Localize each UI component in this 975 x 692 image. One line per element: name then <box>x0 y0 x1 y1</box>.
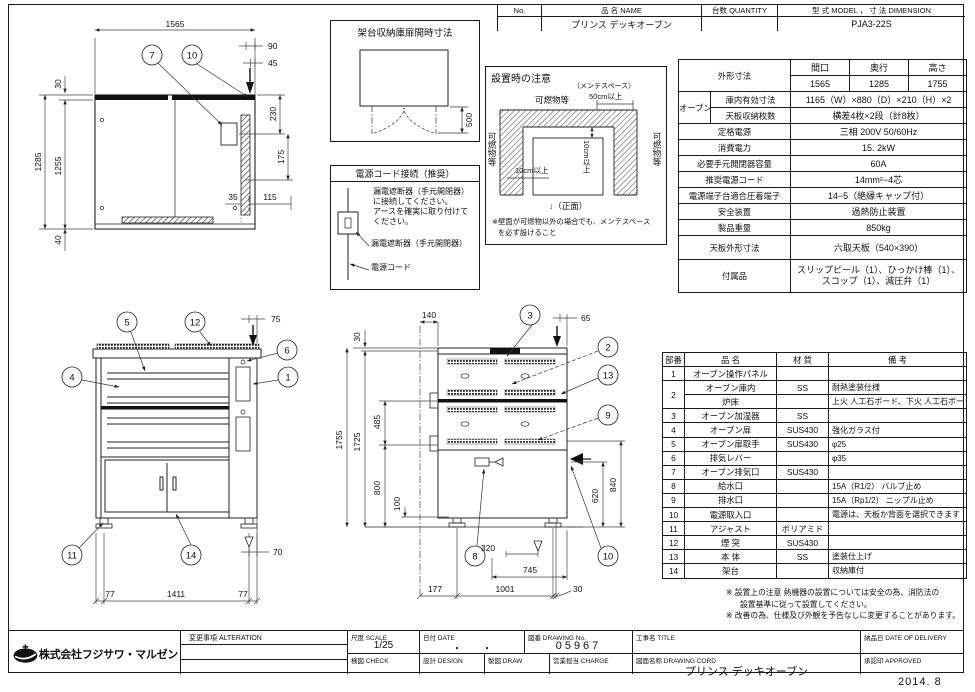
stand-door-open-diagram: 架台収納庫扉開時寸法 500 <box>330 20 480 142</box>
dim-label: 230 <box>268 107 278 121</box>
dim-label: 177 <box>428 584 442 594</box>
wall-note: を必ず設けること <box>498 228 556 238</box>
dim-label: 30 <box>352 332 362 342</box>
dim-label: 30 <box>573 584 583 594</box>
spec-label: 安全装置 <box>679 204 791 220</box>
part-material <box>777 395 829 409</box>
part-material <box>777 508 829 522</box>
dim-label: 1255 <box>53 156 63 175</box>
part-name: オーブン扉 <box>685 423 777 437</box>
part-material <box>777 564 829 578</box>
part-remark <box>829 536 967 550</box>
spec-value: 14mm²−4芯 <box>791 172 967 188</box>
part-remark <box>829 409 967 423</box>
spec-value: 三相 200V 50/60Hz <box>791 124 967 140</box>
spec-value: 850kg <box>791 220 967 236</box>
draw-cell: 製図 DRAW <box>484 653 549 674</box>
dim-label: 320 <box>481 543 495 553</box>
part-material: SUS430 <box>777 536 829 550</box>
part-name: 排気レバー <box>685 451 777 465</box>
dim-label: 70 <box>273 547 283 557</box>
drawing-name-cell: 図面名称 DRAWING CORD プリンス デッキオーブン <box>632 653 860 674</box>
dim-label: 77 <box>105 589 115 599</box>
dim-label: 1285 <box>33 152 43 171</box>
dim-label: 40 <box>53 235 63 245</box>
spec-label: 製品重量 <box>679 220 791 236</box>
dim-label: 800 <box>372 481 382 495</box>
parts-row: 7オーブン排気口SUS430 <box>663 465 967 479</box>
callout-9: 9 <box>605 411 610 422</box>
dim-label: 1411 <box>167 589 186 599</box>
installation-caution-box: 設置時の注意 （メンテスペース） 50cm以上 可燃物等 可燃物等 可燃物等 1… <box>485 66 667 245</box>
installation-notes: ※ 設置上の注意 熱機器の設置については安全の為、消防法の 設置基準に従って設置… <box>726 587 968 622</box>
dim-label: 45 <box>268 58 278 68</box>
drawing-sheet: No. 品 名 NAME 台数 QUANTITY 型 式 MODEL ， 寸 法… <box>0 0 975 692</box>
parts-row: 1オーブン操作パネル <box>663 367 967 381</box>
part-no: 3 <box>663 409 685 423</box>
part-no: 5 <box>663 437 685 451</box>
spec-label: 必要手元開閉器容量 <box>679 156 791 172</box>
spec-value: 1165（W）×880（D）×210（H）×2 <box>791 92 967 108</box>
spec-label: 庫内有効寸法 <box>711 92 791 108</box>
spec-outer-label: 外形寸法 <box>679 60 791 92</box>
maintenance-space-label: （メンテスペース） <box>573 81 635 91</box>
part-remark: 15A（Rp1/2） ニップル止め <box>829 493 967 507</box>
dim-label: 75 <box>271 314 281 324</box>
spec-row: 消費電力15. 2kW <box>679 140 967 156</box>
dim-label: 1001 <box>496 584 515 594</box>
spec-row: 推奨電源コード14mm²−4芯 <box>679 172 967 188</box>
callout-8: 8 <box>472 552 477 563</box>
part-no: 14 <box>663 564 685 578</box>
drawing-name-value: プリンス デッキオーブン <box>633 663 860 679</box>
approved-label: 承認印 APPROVED <box>864 655 921 665</box>
callout-6: 6 <box>284 346 289 357</box>
dim-label: 100 <box>392 497 402 511</box>
power-cord-label: 電源コード <box>371 263 411 274</box>
part-material: SS <box>777 381 829 395</box>
company-logo-cell: 株式会社フジサワ・マルゼン <box>12 636 178 672</box>
plan-view-drawing: 7 10 1565 90 45 30 1285 1255 40 230 175 … <box>15 8 315 263</box>
callout-4: 4 <box>69 373 74 384</box>
part-remark: 収納庫付 <box>829 564 967 578</box>
parts-row: 9排水口15A（Rp1/2） ニップル止め <box>663 493 967 507</box>
callout-12: 12 <box>190 318 201 329</box>
parts-row: 3オーブン加湿器SS <box>663 409 967 423</box>
delivery-date-label: 納品日 DATE OF DELIVERY <box>864 632 947 642</box>
dim-label: 77 <box>238 589 248 599</box>
dim-label: 840 <box>608 478 618 492</box>
part-no: 12 <box>663 536 685 550</box>
project-title-label: 工事名 TITLE <box>636 632 675 642</box>
callout-1: 1 <box>285 373 290 384</box>
breaker-label: 漏電遮断器（手元開閉器） <box>371 239 467 250</box>
dim-label: 35 <box>228 192 238 202</box>
part-no: 10 <box>663 508 685 522</box>
part-remark <box>829 522 967 536</box>
check-label: 検図 CHECK <box>351 655 389 665</box>
parts-row: 8給水口15A（R1/2） バルブ止め <box>663 479 967 493</box>
dim-label: 620 <box>590 489 600 503</box>
part-material <box>777 451 829 465</box>
dim-50cm-label: 50cm以上 <box>589 91 622 102</box>
part-material: SS <box>777 409 829 423</box>
spec-row: 外形寸法 間口 奥行 高さ <box>679 60 967 76</box>
spec-label: 推奨電源コード <box>679 172 791 188</box>
dim-label: 1725 <box>352 432 362 451</box>
note-line: ※ 設置上の注意 熱機器の設置については安全の為、消防法の <box>726 587 968 599</box>
dim-label: 90 <box>268 41 278 51</box>
spec-row: 安全装置過熱防止装置 <box>679 204 967 220</box>
scale-value: 1/25 <box>348 640 419 651</box>
parts-row: 13本 体SS塗装仕上げ <box>663 550 967 564</box>
part-remark: 電源は、天板か背面を選択できます <box>829 508 967 522</box>
project-title-cell: 工事名 TITLE <box>632 631 860 653</box>
part-no: 8 <box>663 479 685 493</box>
spec-label: 天板収納枚数 <box>711 108 791 124</box>
model-number: PJA3-22S <box>777 17 965 31</box>
spec-row: 天板収納枚数 横差4枚×2段（計8枚） <box>679 108 967 124</box>
spec-label: 天板外形寸法 <box>679 236 791 260</box>
power-box-text: ください。 <box>373 217 413 228</box>
charge-label: 営業担当 CHARGE <box>553 655 609 665</box>
part-remark: 耐熱塗装仕様 <box>829 381 967 395</box>
parts-row: 炉床上火 人工石ボード、下火 人工石ボード <box>663 395 967 409</box>
part-name: オーブン操作パネル <box>685 367 777 381</box>
spec-value: 過熱防止装置 <box>791 204 967 220</box>
part-remark: 上火 人工石ボード、下火 人工石ボード <box>829 395 967 409</box>
parts-table: 部番 品 名 材 質 備 考 1オーブン操作パネル2オーブン庫内SS耐熱塗装仕様… <box>662 352 967 579</box>
front-elevation-drawing: 5 12 6 4 1 11 14 75 70 77 1411 77 <box>15 305 323 607</box>
spec-row: 必要手元開閉器容量60A <box>679 156 967 172</box>
issue-date: 2014. 8 <box>898 676 942 688</box>
parts-row: 14架台収納庫付 <box>663 564 967 578</box>
part-remark: φ25 <box>829 437 967 451</box>
spec-row: オーブン 庫内有効寸法 1165（W）×880（D）×210（H）×2 <box>679 92 967 108</box>
spec-row: 付属品スリップピール（1）、ひっかけ棒（1）、スコップ（1）、減圧弁（1） <box>679 260 967 293</box>
header-no-label: No. <box>497 4 541 17</box>
parts-row: 6排気レバーφ35 <box>663 451 967 465</box>
stand-box-title: 架台収納庫扉開時寸法 <box>357 27 452 39</box>
note-line: ※ 改善の為、仕様及び外観を予告なしに変更することがあります。 <box>726 610 968 622</box>
callout-10: 10 <box>187 51 198 62</box>
spec-col-h: 高さ <box>909 60 967 76</box>
part-no: 1 <box>663 367 685 381</box>
part-material: SS <box>777 550 829 564</box>
parts-row: 4オーブン扉SUS430強化ガラス付 <box>663 423 967 437</box>
spec-label: 消費電力 <box>679 140 791 156</box>
date-cell: 日付 DATE ・ ・ <box>419 631 524 653</box>
callout-2: 2 <box>605 343 610 354</box>
part-name: 排水口 <box>685 493 777 507</box>
spec-label: 定格電源 <box>679 124 791 140</box>
parts-row: 2オーブン庫内SS耐熱塗装仕様 <box>663 381 967 395</box>
part-no: 6 <box>663 451 685 465</box>
flammable-right-label: 可燃物等 <box>651 132 662 166</box>
flammable-top-label: 可燃物等 <box>535 94 569 106</box>
part-material <box>777 367 829 381</box>
side-elevation-drawing: 3 2 13 9 8 10 30 140 65 1755 1725 485 80… <box>325 300 661 604</box>
part-name: オーブン扉取手 <box>685 437 777 451</box>
callout-5: 5 <box>124 318 129 329</box>
power-box-text: 漏電遮断器（手元開閉器） <box>373 187 469 198</box>
dim-label: 500 <box>464 113 474 127</box>
parts-row: 5オーブン扉取手SUS430φ25 <box>663 437 967 451</box>
part-name: 本 体 <box>685 550 777 564</box>
part-remark: 塗装仕上げ <box>829 550 967 564</box>
power-box-title: 電源コード接続（推奨） <box>331 166 479 182</box>
spec-depth: 1285 <box>850 76 909 92</box>
part-name: 給水口 <box>685 479 777 493</box>
spec-label: 電源端子台適合圧着端子 <box>679 188 791 204</box>
spec-table: 外形寸法 間口 奥行 高さ 1565 1285 1755 オーブン 庫内有効寸法… <box>678 59 967 293</box>
part-name: 炉床 <box>685 395 777 409</box>
install-box-title: 設置時の注意 <box>491 70 551 85</box>
note-line: 設置基準に従って設置してください。 <box>726 599 968 611</box>
header-name-label: 品 名 NAME <box>541 4 701 17</box>
spec-col-d: 奥行 <box>850 60 909 76</box>
parts-row: 12煙 突SUS430 <box>663 536 967 550</box>
part-remark: φ35 <box>829 451 967 465</box>
dim-label: 1565 <box>166 19 185 29</box>
drawing-no-cell: 図番 DRAWING No. 05967 <box>524 631 632 653</box>
scale-cell: 尺度 SCALE 1/25 <box>347 631 419 653</box>
spec-value: 60A <box>791 156 967 172</box>
header-no-value <box>497 17 541 31</box>
part-remark: 強化ガラス付 <box>829 423 967 437</box>
spec-row: 電源端子台適合圧着端子14−5（絶縁キャップ付） <box>679 188 967 204</box>
spec-value: スリップピール（1）、ひっかけ棒（1）、スコップ（1）、減圧弁（1） <box>791 260 967 293</box>
part-name: アジャスト <box>685 522 777 536</box>
spec-row: 天板外形寸法六取天板（540×390） <box>679 236 967 260</box>
dim-label: 140 <box>422 310 436 320</box>
company-logo-icon <box>12 641 39 667</box>
part-no: 4 <box>663 423 685 437</box>
part-remark: 15A（R1/2） バルブ止め <box>829 479 967 493</box>
dim-label: 745 <box>523 565 537 575</box>
alteration-cell: 変更事項 ALTERATION <box>180 631 347 674</box>
part-name: 架台 <box>685 564 777 578</box>
spec-value: 14−5（絶縁キャップ付） <box>791 188 967 204</box>
check-cell: 検図 CHECK <box>347 653 419 674</box>
part-remark <box>829 367 967 381</box>
header-model-label: 型 式 MODEL ， 寸 法 DIMENSION <box>777 4 965 17</box>
part-name: オーブン庫内 <box>685 381 777 395</box>
spec-value: 横差4枚×2段（計8枚） <box>791 108 967 124</box>
spec-value: 15. 2kW <box>791 140 967 156</box>
design-label: 設計 DESIGN <box>423 655 463 665</box>
power-box-text: アースを確実に取り付けて <box>373 207 468 218</box>
callout-3: 3 <box>527 311 532 322</box>
parts-row: 11アジャストポリアミド <box>663 522 967 536</box>
part-name: 煙 突 <box>685 536 777 550</box>
callout-7: 7 <box>149 51 154 62</box>
delivery-date-cell: 納品日 DATE OF DELIVERY <box>860 631 964 653</box>
spec-row: 製品重量850kg <box>679 220 967 236</box>
power-cord-diagram <box>333 184 373 288</box>
parts-col-material: 材 質 <box>777 353 829 367</box>
part-material: ポリアミド <box>777 522 829 536</box>
spec-row: 定格電源三相 200V 50/60Hz <box>679 124 967 140</box>
part-no: 11 <box>663 522 685 536</box>
drawing-no-value: 05967 <box>525 640 632 652</box>
draw-label: 製図 DRAW <box>488 655 522 665</box>
callout-13: 13 <box>603 371 614 382</box>
spec-oven-label: オーブン <box>679 92 711 124</box>
dim-label: 115 <box>263 192 277 202</box>
callout-10: 10 <box>603 552 614 563</box>
spec-value: 六取天板（540×390） <box>791 236 967 260</box>
part-name: オーブン加湿器 <box>685 409 777 423</box>
quantity-value <box>701 17 777 31</box>
header-table: No. 品 名 NAME 台数 QUANTITY 型 式 MODEL ， 寸 法… <box>497 4 965 31</box>
part-material: SUS430 <box>777 465 829 479</box>
spec-col-w: 間口 <box>791 60 850 76</box>
part-material: SUS430 <box>777 423 829 437</box>
power-cord-box: 電源コード接続（推奨） 漏電遮断器（手元開閉器） に接続してください。 アースを… <box>330 165 480 290</box>
dim-label: 175 <box>276 150 286 164</box>
part-material: SUS430 <box>777 437 829 451</box>
dim-label: 485 <box>372 415 382 429</box>
part-no: 13 <box>663 550 685 564</box>
charge-cell: 営業担当 CHARGE <box>549 653 632 674</box>
product-name: プリンス デッキオーブン <box>541 17 701 31</box>
dim-10cm-h-label: 10cm以上 <box>515 165 548 176</box>
alteration-label: 変更事項 ALTERATION <box>181 631 347 643</box>
spec-height: 1755 <box>909 76 967 92</box>
part-material <box>777 493 829 507</box>
parts-col-name: 品 名 <box>685 353 777 367</box>
design-cell: 設計 DESIGN <box>419 653 484 674</box>
part-no: 7 <box>663 465 685 479</box>
callout-11: 11 <box>67 551 77 562</box>
dim-label: 30 <box>53 79 63 89</box>
parts-header-row: 部番 品 名 材 質 備 考 <box>663 353 967 367</box>
flammable-left-label: 可燃物等 <box>486 132 497 166</box>
part-name: オーブン排気口 <box>685 465 777 479</box>
part-remark <box>829 465 967 479</box>
spec-label: 付属品 <box>679 260 791 293</box>
header-qty-label: 台数 QUANTITY <box>701 4 777 17</box>
power-box-text: に接続してください。 <box>373 197 453 208</box>
part-no: 2 <box>663 381 685 409</box>
parts-row: 10電源取入口電源は、天板か背面を選択できます <box>663 508 967 522</box>
wall-note: ※壁面が可燃物以外の場合でも、メンテスペース <box>492 217 650 227</box>
title-block: 株式会社フジサワ・マルゼン 変更事項 ALTERATION 尺度 SCALE 1… <box>8 630 964 673</box>
dim-10cm-v-label: 10cm以上 <box>581 140 592 173</box>
callout-14: 14 <box>186 551 197 562</box>
part-no: 9 <box>663 493 685 507</box>
parts-col-remark: 備 考 <box>829 353 967 367</box>
spec-width: 1565 <box>791 76 850 92</box>
part-material <box>777 479 829 493</box>
dim-label: 65 <box>581 313 591 323</box>
dim-label: 1755 <box>334 430 344 449</box>
company-name: 株式会社フジサワ・マルゼン <box>39 646 178 662</box>
part-name: 電源取入口 <box>685 508 777 522</box>
approved-cell: 承認印 APPROVED <box>860 653 964 674</box>
parts-col-no: 部番 <box>663 353 685 367</box>
front-direction-label: ↓（正面） <box>549 200 587 212</box>
